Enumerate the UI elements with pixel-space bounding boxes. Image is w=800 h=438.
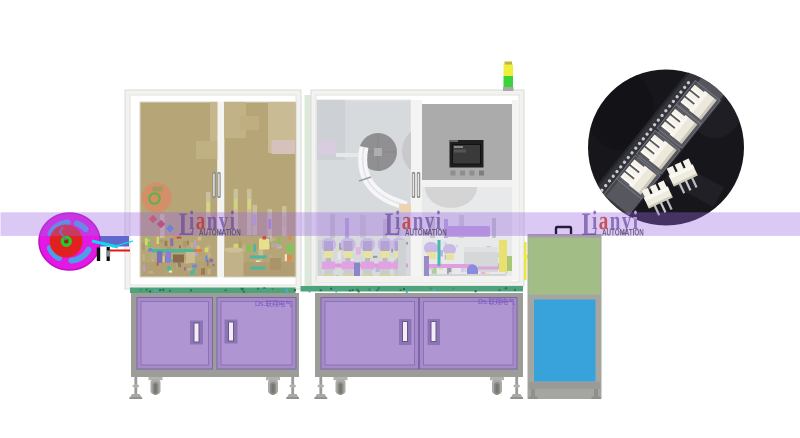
svg-text:Ds.联翔电气: Ds.联翔电气 [255,299,292,308]
svg-text:Ds.联翔电气: Ds.联翔电气 [478,297,515,306]
svg-text:AUTOMATION: AUTOMATION [602,227,644,238]
svg-text:AUTOMATION: AUTOMATION [199,227,241,238]
svg-text:AUTOMATION: AUTOMATION [405,227,447,238]
